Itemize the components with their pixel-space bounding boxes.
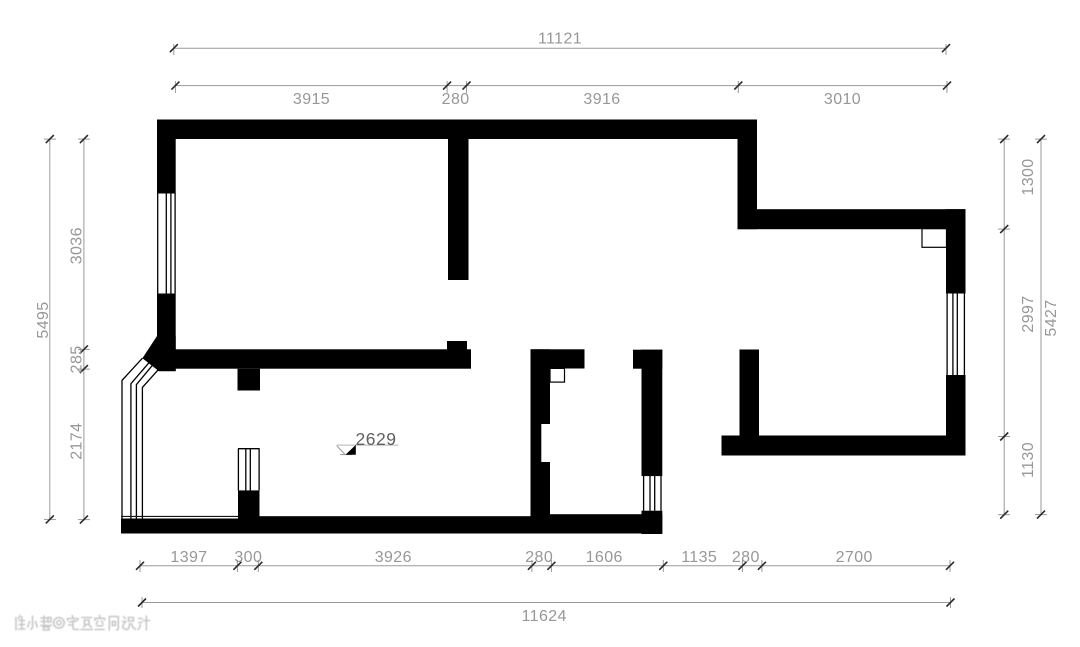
svg-text:3036: 3036 [69, 227, 86, 264]
svg-text:1130: 1130 [1020, 442, 1037, 478]
svg-text:11624: 11624 [522, 608, 567, 625]
svg-text:1606: 1606 [586, 549, 623, 566]
svg-text:3915: 3915 [293, 91, 330, 108]
svg-text:11121: 11121 [538, 31, 582, 48]
svg-text:2997: 2997 [1020, 295, 1037, 332]
svg-text:2174: 2174 [69, 423, 86, 460]
svg-text:3926: 3926 [375, 549, 412, 566]
svg-text:3916: 3916 [583, 91, 620, 108]
svg-text:280: 280 [732, 549, 760, 566]
svg-text:2700: 2700 [836, 549, 873, 566]
svg-text:1397: 1397 [170, 549, 207, 566]
svg-text:280: 280 [442, 91, 470, 108]
svg-text:3010: 3010 [824, 91, 861, 108]
svg-text:2629: 2629 [356, 429, 397, 449]
svg-text:1300: 1300 [1020, 158, 1037, 195]
svg-text:285: 285 [69, 345, 86, 373]
svg-text:300: 300 [234, 549, 262, 566]
svg-text:280: 280 [525, 549, 553, 566]
svg-text:1135: 1135 [681, 549, 717, 566]
svg-text:5427: 5427 [1043, 299, 1060, 336]
svg-text:5495: 5495 [35, 301, 52, 338]
